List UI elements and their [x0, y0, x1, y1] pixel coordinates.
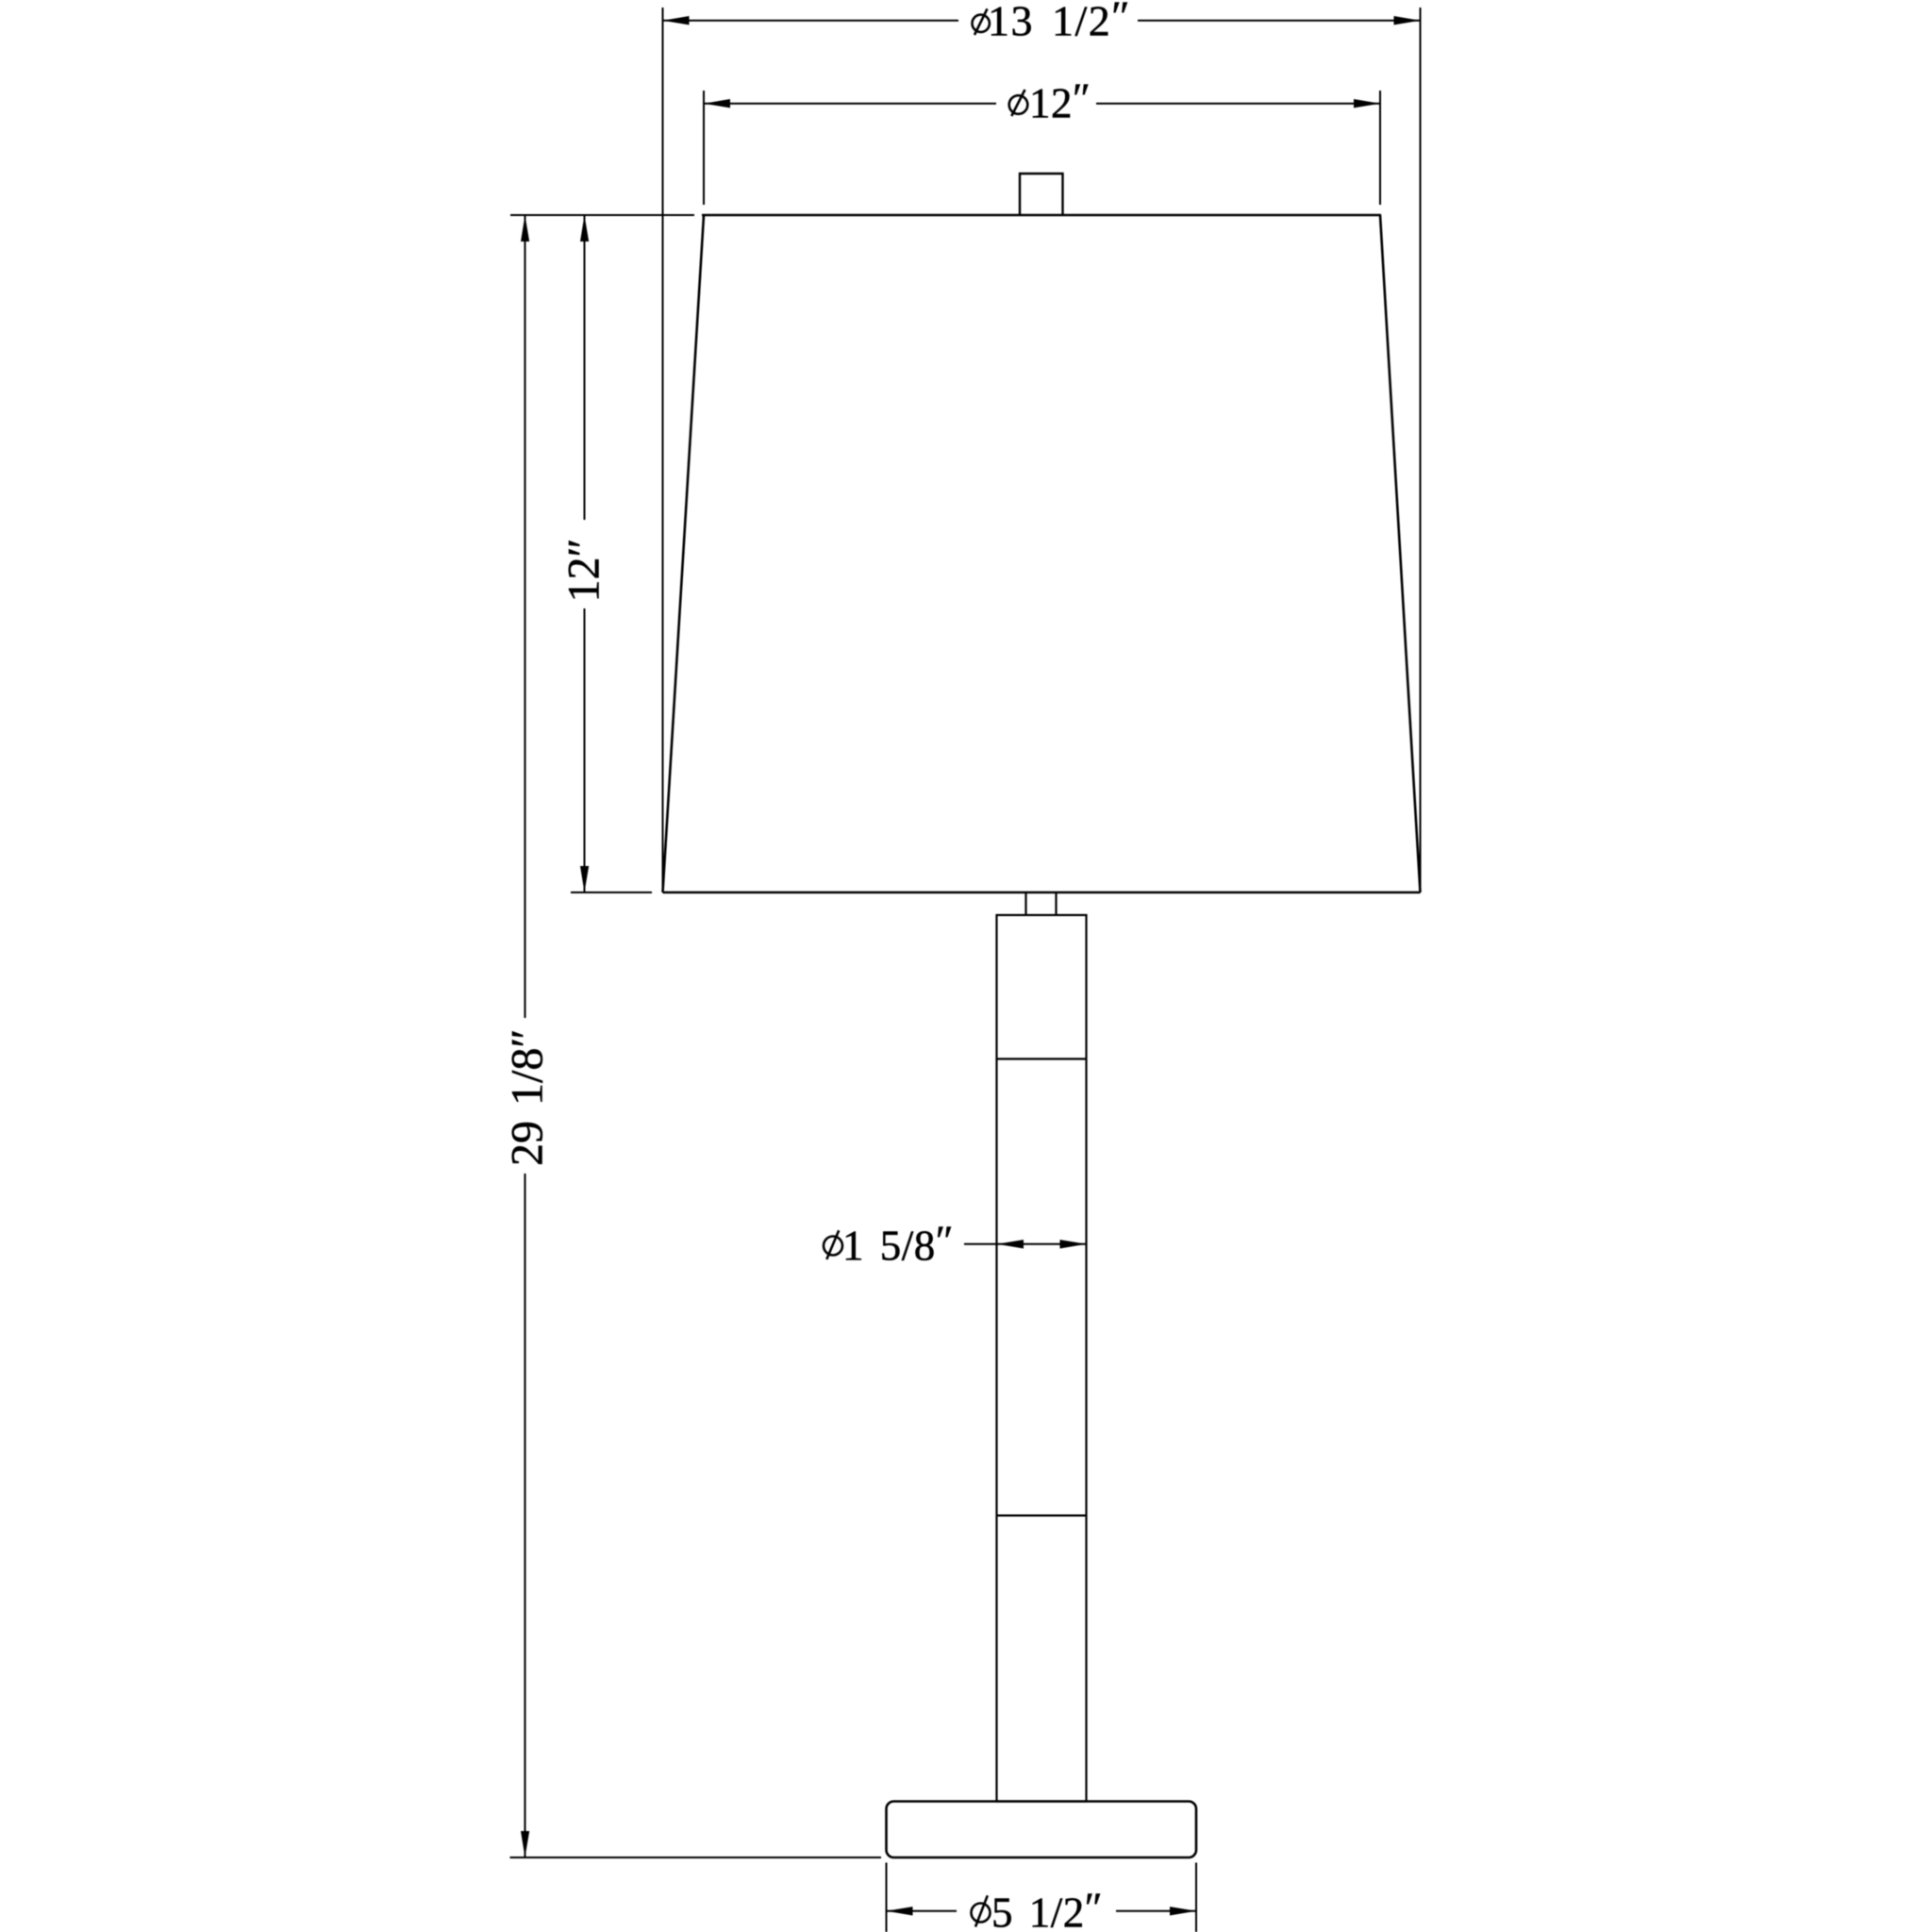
svg-text:13 1/2″: 13 1/2″ — [988, 0, 1131, 45]
svg-text:1 5/8″: 1 5/8″ — [842, 1218, 954, 1270]
svg-text:12″: 12″ — [559, 539, 609, 603]
svg-text:29 1/8″: 29 1/8″ — [503, 1029, 553, 1166]
svg-text:5 1/2″: 5 1/2″ — [991, 1885, 1103, 1932]
svg-text:12″: 12″ — [1029, 75, 1091, 127]
